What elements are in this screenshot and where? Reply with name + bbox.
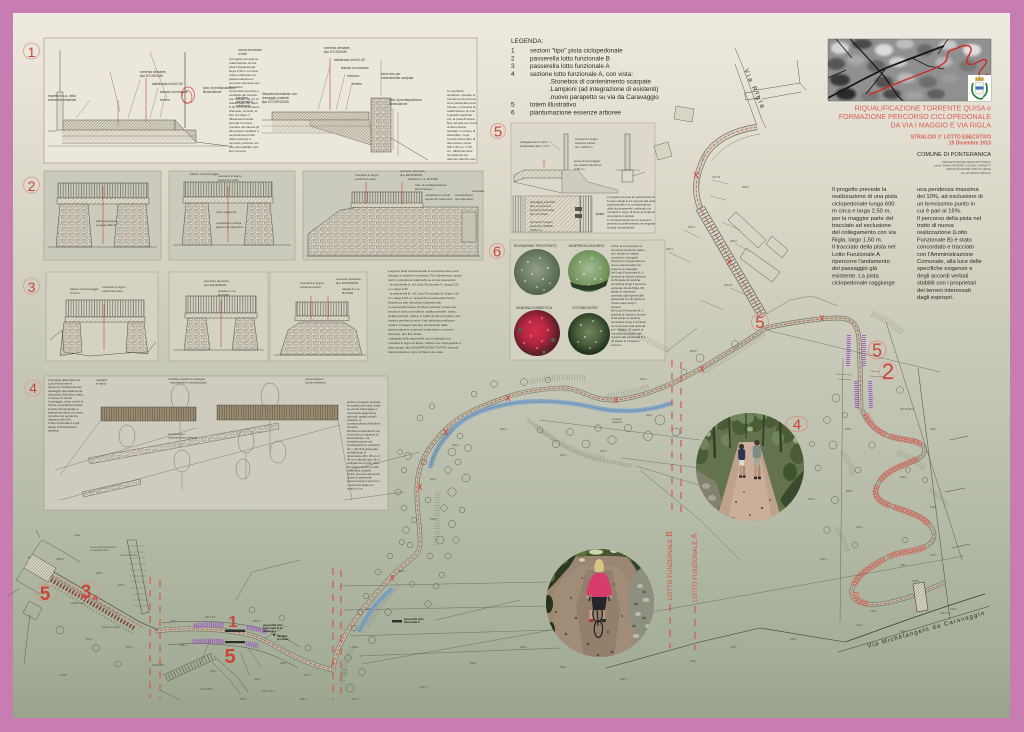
- svg-text:4: 4: [793, 417, 801, 434]
- svg-text:FORMAZIONE PERCORSO CICLOPEDON: FORMAZIONE PERCORSO CICLOPEDONALE: [839, 113, 991, 121]
- svg-text:308.8: 308.8: [846, 489, 853, 493]
- svg-text:muro esistente: muro esistente: [216, 210, 237, 214]
- svg-text:in ferro: in ferro: [70, 291, 80, 295]
- svg-text:314.0: 314.0: [950, 607, 957, 611]
- svg-text:legati con betoncino: legati con betoncino: [216, 225, 244, 229]
- svg-text:.Stonebox di contenimento scar: .Stonebox di contenimento scarpate: [549, 79, 651, 86]
- svg-text:ulteriore altezza max: ulteriore altezza max: [447, 157, 476, 161]
- svg-text:per la maggior parte del: per la maggior parte del: [832, 216, 893, 222]
- svg-text:montanti in legno di larice, t: montanti in legno di larice, trattato co…: [388, 341, 461, 345]
- svg-text:- la passerella A, nel Lotto F: - la passerella A, nel Lotto Funzionale …: [388, 283, 459, 287]
- svg-text:ciclopedonale raggiunge: ciclopedonale raggiunge: [832, 281, 895, 287]
- svg-text:minima pendenza verso i lati d: minima pendenza verso i lati della passe…: [388, 319, 455, 323]
- svg-text:m e larga 2,50- m. Entrambe le: m e larga 2,50- m. Entrambe le passerell…: [388, 296, 455, 300]
- svg-text:I parapetti delle passerelle s: I parapetti delle passerelle sono realiz…: [388, 337, 451, 341]
- svg-text:a quota 300.20: a quota 300.20: [96, 223, 117, 227]
- svg-text:297.4 05: 297.4 05: [205, 615, 216, 619]
- svg-text:evitare il ristagno d'acqua pr: evitare il ristagno d'acqua proveniente …: [388, 323, 448, 327]
- svg-text:sezioni "tipo" pista cicloped: sezioni "tipo" pista ciclopedonale: [530, 48, 623, 55]
- svg-text:306.1: 306.1: [845, 427, 852, 431]
- svg-text:stabiliti con i proprietari: stabiliti con i proprietari: [917, 281, 976, 287]
- svg-text:303.8: 303.8: [690, 349, 697, 353]
- svg-text:ROSMARINO PROSTRATO: ROSMARINO PROSTRATO: [514, 244, 557, 248]
- svg-text:concordato e tracciato: concordato e tracciato: [917, 245, 974, 251]
- svg-text:pubblica.: pubblica.: [48, 428, 60, 432]
- svg-text:297.0: 297.0: [304, 673, 311, 677]
- svg-text:34.03.08.5: 34.03.08.5: [152, 663, 165, 667]
- svg-text:legati con betoncino: legati con betoncino: [425, 197, 453, 201]
- svg-text:illuminazione: illuminazione: [203, 90, 222, 94]
- svg-text:ing. EUGENIO FRIGOLI: ing. EUGENIO FRIGOLI: [961, 171, 991, 175]
- svg-text:in legno: in legno: [96, 382, 107, 386]
- svg-text:terreno: terreno: [352, 82, 362, 86]
- svg-text:tessuto non tessuto: tessuto non tessuto: [341, 66, 369, 70]
- svg-text:essenza Larice: essenza Larice: [300, 285, 321, 289]
- svg-text:specifiche esigenze e: specifiche esigenze e: [917, 266, 972, 272]
- svg-text:308.2: 308.2: [930, 427, 937, 431]
- svg-text:esistente. La pista: esistente. La pista: [832, 273, 880, 279]
- svg-text:COMUNE DI PONTERANICA: COMUNE DI PONTERANICA: [917, 152, 991, 158]
- svg-text:in rete: in rete: [238, 52, 247, 56]
- svg-text:4x30 cm: 4x30 cm: [530, 228, 542, 232]
- svg-text:base acqua, tipo AQUAPROFI BS: base acqua, tipo AQUAPROFI BS TOP FK anc…: [388, 346, 459, 350]
- svg-text:distanziale diam. 3 cm: distanziale diam. 3 cm: [520, 144, 550, 148]
- svg-text:312.9: 312.9: [856, 623, 863, 627]
- svg-text:NANDINA DOMESTICA: NANDINA DOMESTICA: [516, 306, 553, 310]
- svg-text:Funzionale B) è stato: Funzionale B) è stato: [917, 237, 972, 243]
- svg-text:307.40 05.6: 307.40 05.6: [900, 407, 914, 411]
- svg-text:3: 3: [511, 63, 515, 70]
- svg-text:300.9: 300.9: [500, 427, 507, 431]
- svg-text:totem illustrativo: totem illustrativo: [530, 102, 577, 109]
- svg-text:4: 4: [511, 71, 515, 78]
- svg-text:essenza Larice: essenza Larice: [355, 177, 376, 181]
- svg-text:in autobloccanti: in autobloccanti: [90, 548, 108, 552]
- svg-text:realizzazione (Lotto: realizzazione (Lotto: [917, 230, 967, 236]
- svg-text:piantumazione essenze arboree: piantumazione essenze arboree: [530, 109, 621, 116]
- svg-text:tipo ECODRAIN: tipo ECODRAIN: [336, 281, 358, 285]
- svg-text:RcK300: RcK300: [342, 291, 353, 295]
- svg-text:nandina dom.: nandina dom.: [70, 601, 86, 605]
- svg-text:300.1: 300.1: [430, 477, 437, 481]
- svg-text:sez. 4x25 cm: sez. 4x25 cm: [575, 145, 593, 149]
- svg-text:stabilizzato inerti 0-30: stabilizzato inerti 0-30: [152, 82, 183, 86]
- svg-text:Le passerelle hanno struttura: Le passerelle hanno struttura portante i…: [388, 305, 457, 309]
- svg-text:5: 5: [224, 646, 235, 668]
- svg-text:309.4: 309.4: [900, 475, 907, 479]
- svg-text:tipo eco drain: tipo eco drain: [530, 212, 548, 216]
- svg-text:4: 4: [29, 380, 37, 396]
- svg-text:spalla portante, platea. Il so: spalla portante, platea. Il solaio dovrà…: [388, 314, 460, 318]
- svg-text:del passaggio già: del passaggio già: [832, 266, 878, 272]
- svg-text:passerella lotto funzionale B: passerella lotto funzionale B: [530, 55, 610, 62]
- svg-text:essenza Larice: essenza Larice: [102, 289, 123, 293]
- svg-text:piastre di ancoraggio: piastre di ancoraggio: [190, 172, 219, 176]
- svg-text:308.2: 308.2: [730, 239, 737, 243]
- svg-text:JUNIPERUS AZZURRO: JUNIPERUS AZZURRO: [568, 244, 605, 248]
- svg-text:310.2: 310.2: [930, 505, 937, 509]
- svg-text:Lotto Funzionale A: Lotto Funzionale A: [832, 252, 880, 258]
- svg-text:5: 5: [494, 124, 502, 141]
- svg-text:tombatta: tombatta: [472, 189, 484, 193]
- svg-text:ripercorre l'andamento: ripercorre l'andamento: [832, 259, 890, 265]
- svg-text:312.4: 312.4: [870, 609, 877, 613]
- svg-text:armato e forma a tenditoio: sp: armato e forma a tenditoio: spalla porta…: [388, 310, 457, 314]
- svg-text:tipo ECOGROUND: tipo ECOGROUND: [262, 100, 290, 104]
- svg-text:305.8: 305.8: [808, 497, 815, 501]
- svg-text:terreno: terreno: [160, 98, 170, 102]
- svg-text:tipo ECODRAIN: tipo ECODRAIN: [140, 74, 164, 78]
- svg-text:con l'Amministrazione: con l'Amministrazione: [917, 252, 973, 258]
- svg-text:309.0: 309.0: [742, 185, 749, 189]
- svg-text:296.8: 296.8: [280, 661, 287, 665]
- svg-text:degli accordi verbali: degli accordi verbali: [917, 273, 968, 279]
- svg-text:tratto di nuova: tratto di nuova: [917, 223, 955, 229]
- svg-text:311.8: 311.8: [790, 637, 797, 641]
- svg-text:reinforzo: reinforzo: [347, 74, 360, 78]
- svg-text:esistente: esistente: [612, 420, 623, 424]
- svg-text:tracciato ad esclusione: tracciato ad esclusione: [832, 223, 891, 229]
- svg-text:Via Rigla: Via Rigla: [742, 68, 766, 111]
- svg-text:Eco Ground: Eco Ground: [229, 149, 246, 153]
- svg-text:dagli espropri.: dagli espropri.: [917, 295, 954, 301]
- svg-text:297.9: 297.9: [420, 685, 427, 689]
- svg-text:302.4: 302.4: [646, 413, 653, 417]
- svg-text:301.8: 301.8: [600, 449, 607, 453]
- svg-text:realizzazione di una pista: realizzazione di una pista: [832, 194, 898, 200]
- svg-text:azzurra.: azzurra.: [611, 343, 622, 347]
- svg-text:296.5: 296.5: [210, 669, 217, 673]
- svg-text:tramite piastre in ferro al fi: tramite piastre in ferro al fianco dei s…: [388, 350, 444, 354]
- svg-text:drenante, tipo Eco Drain.: drenante, tipo Eco Drain.: [388, 332, 422, 336]
- svg-text:296.4: 296.4: [300, 697, 307, 701]
- svg-text:un brevissimo punto in: un brevissimo punto in: [917, 201, 975, 207]
- svg-text:305.4: 305.4: [666, 247, 673, 251]
- svg-text:illuminazione: illuminazione: [415, 187, 433, 191]
- svg-text:tessuto non tessuto: tessuto non tessuto: [160, 90, 188, 94]
- svg-text:sedute in legno: sedute in legno: [102, 625, 120, 629]
- svg-text:LOTTO FUNZIONALE B: LOTTO FUNZIONALE B: [664, 531, 674, 600]
- svg-text:Via Michelangelo da Caravaggi: Via Michelangelo da Caravaggio: [867, 610, 986, 649]
- svg-text:solaio in c.a.: solaio in c.a.: [347, 486, 363, 490]
- svg-text:2: 2: [882, 359, 894, 384]
- svg-text:h 38 cm: h 38 cm: [574, 167, 585, 171]
- svg-text:una pendenza massima: una pendenza massima: [917, 187, 979, 193]
- svg-text:34.05: 34.05: [60, 673, 67, 677]
- svg-text:297.4: 297.4: [170, 619, 177, 623]
- svg-text:stabilizzato inerti 0-30: stabilizzato inerti 0-30: [334, 58, 365, 62]
- svg-text:Comunale, alla luce delle: Comunale, alla luce delle: [917, 259, 982, 265]
- svg-text:(come esistenti): (come esistenti): [305, 381, 325, 385]
- svg-text:310.6: 310.6: [730, 645, 737, 649]
- svg-text:298.3: 298.3: [470, 661, 477, 665]
- svg-text:LOTTO FUNZIONALE A: LOTTO FUNZIONALE A: [689, 533, 699, 602]
- svg-text:Il percorso della pista nel: Il percorso della pista nel: [917, 216, 981, 222]
- svg-text:prato: prato: [596, 212, 604, 216]
- svg-text:297.9: 297.9: [118, 583, 125, 587]
- svg-text:1: 1: [28, 44, 36, 60]
- svg-text:contenimento scarpata: contenimento scarpata: [168, 436, 198, 440]
- svg-text:sezione lotto funzionale A, co: sezione lotto funzionale A, con vista:: [530, 71, 633, 78]
- svg-text:sponda alveo: sponda alveo: [455, 197, 474, 201]
- svg-text:5: 5: [40, 584, 51, 605]
- svg-text:Rigla, largo 1,50 m.: Rigla, largo 1,50 m.: [832, 237, 883, 243]
- svg-text:34.03.05.6: 34.03.05.6: [200, 687, 213, 691]
- svg-text:2: 2: [511, 55, 515, 62]
- svg-text:m e larga 2,50: m e larga 2,50: [388, 287, 408, 291]
- svg-text:295.9: 295.9: [240, 697, 247, 701]
- svg-text:Il progetto prevede la: Il progetto prevede la: [832, 187, 887, 193]
- svg-text:299.1: 299.1: [560, 665, 567, 669]
- svg-text:298.4: 298.4: [96, 571, 103, 575]
- svg-text:RcK300: RcK300: [218, 293, 229, 297]
- svg-text:pavimentazione superiore reali: pavimentazione superiore realizzata in c…: [388, 328, 454, 332]
- svg-text:298.10: 298.10: [56, 557, 64, 561]
- svg-text:recinzione esistente: recinzione esistente: [48, 98, 76, 102]
- svg-text:del 10%, ad esclusione di: del 10%, ad esclusione di: [917, 194, 983, 200]
- svg-text:.Lampioni (ad integrazione di: .Lampioni (ad integrazione di esistenti): [549, 86, 658, 93]
- svg-text:soletta in c.a. RcK300: soletta in c.a. RcK300: [408, 177, 438, 181]
- svg-text:DA VIA I MAGGIO E VIA RIGLA: DA VIA I MAGGIO E VIA RIGLA: [890, 122, 991, 130]
- svg-text:tipo ECODRAIN: tipo ECODRAIN: [204, 283, 226, 287]
- svg-text:34.07.37.4: 34.07.37.4: [262, 689, 275, 693]
- svg-text:301.2: 301.2: [560, 453, 567, 457]
- svg-text:19 Dicembre 2013: 19 Dicembre 2013: [949, 141, 991, 147]
- svg-text:299.2: 299.2: [398, 569, 405, 573]
- svg-text:illuminazione: illuminazione: [389, 102, 408, 106]
- svg-text:Il tracciato della pista nel: Il tracciato della pista nel: [832, 245, 895, 251]
- svg-text:la pista ciclopedonale.: la pista ciclopedonale.: [607, 225, 636, 229]
- svg-text:3: 3: [81, 582, 92, 603]
- svg-text:1: 1: [511, 48, 515, 55]
- svg-text:Lungo la pista ciclopedonale s: Lungo la pista ciclopedonale si incontra…: [388, 269, 459, 273]
- svg-text:funzionale A: funzionale A: [404, 620, 420, 624]
- svg-text:betoncino: betoncino: [263, 629, 276, 633]
- svg-text:lunghezza pari alla pista cicl: lunghezza pari alla pista ciclopedonale.: [388, 301, 442, 305]
- svg-text:LEGENDA:: LEGENDA:: [511, 38, 544, 45]
- svg-text:ciclopedonale lunga 600: ciclopedonale lunga 600: [832, 201, 895, 207]
- svg-text:306.2: 306.2: [820, 557, 827, 561]
- svg-text:298.1: 298.1: [352, 645, 359, 649]
- svg-text:- la passerella B, nel Lotto F: - la passerella B, nel Lotto Funzionale …: [388, 292, 459, 296]
- svg-text:1: 1: [229, 614, 238, 631]
- svg-text:312.0: 312.0: [930, 553, 937, 557]
- svg-text:299.6: 299.6: [620, 677, 627, 681]
- svg-text:297.1: 297.1: [126, 645, 133, 649]
- svg-text:310.9: 310.9: [856, 525, 863, 529]
- svg-text:3: 3: [28, 279, 36, 295]
- svg-text:m circa e larga 2,50 m,: m circa e larga 2,50 m,: [832, 209, 891, 215]
- svg-text:297.8: 297.8: [253, 619, 260, 623]
- svg-text:296.9: 296.9: [180, 643, 187, 647]
- svg-text:essenza Larice: essenza Larice: [218, 178, 239, 182]
- svg-text:prostrate: prostrate: [277, 637, 289, 641]
- svg-text:313.4: 313.4: [900, 629, 907, 633]
- svg-text:.nuovo parapetto su via da Car: .nuovo parapetto su via da Caravaggio: [549, 94, 659, 101]
- svg-text:312.8: 312.8: [912, 579, 919, 583]
- svg-text:contenimento scarpata: contenimento scarpata: [381, 76, 413, 80]
- svg-text:300.5: 300.5: [452, 443, 459, 447]
- svg-text:297.2: 297.2: [86, 637, 93, 641]
- svg-text:5: 5: [511, 102, 515, 109]
- svg-text:296.2: 296.2: [254, 677, 261, 681]
- svg-text:RIQUALIFICAZIONE TORRENTE QUIS: RIQUALIFICAZIONE TORRENTE QUISA e: [854, 105, 991, 113]
- svg-text:6: 6: [511, 109, 515, 116]
- svg-text:303.0: 303.0: [640, 377, 647, 381]
- svg-text:passerella lotto funzionale A: passerella lotto funzionale A: [530, 63, 610, 70]
- svg-text:303.15: 303.15: [724, 283, 733, 287]
- svg-text:dei terreni interessati: dei terreni interessati: [917, 288, 971, 294]
- svg-text:muro esistente: muro esistente: [120, 553, 138, 557]
- svg-text:2: 2: [28, 178, 36, 194]
- svg-text:310.40: 310.40: [712, 175, 721, 179]
- svg-text:300.2: 300.2: [690, 659, 697, 663]
- svg-text:6: 6: [493, 244, 501, 261]
- svg-text:297.6: 297.6: [352, 697, 359, 701]
- svg-text:COTONEASTER: COTONEASTER: [572, 306, 598, 310]
- svg-text:marciapiede in autobloccanti: marciapiede in autobloccanti: [170, 381, 207, 385]
- svg-text:ponte: ponte: [74, 533, 81, 537]
- svg-text:306.9: 306.9: [688, 225, 695, 229]
- svg-text:299.8: 299.8: [430, 517, 437, 521]
- svg-text:del collegamento con via: del collegamento con via: [832, 230, 897, 236]
- svg-text:d'acqua a carattere torrentizi: d'acqua a carattere torrentizio. Per att…: [388, 274, 462, 278]
- svg-text:298.9: 298.9: [520, 645, 527, 649]
- svg-text:tipo ECODRAIN: tipo ECODRAIN: [324, 50, 348, 54]
- svg-text:cui è pari al 15%.: cui è pari al 15%.: [917, 209, 962, 215]
- svg-text:313.1 05: 313.1 05: [940, 611, 951, 615]
- svg-text:punti è prevista la realizzazi: punti è prevista la realizzazione di due…: [388, 278, 456, 282]
